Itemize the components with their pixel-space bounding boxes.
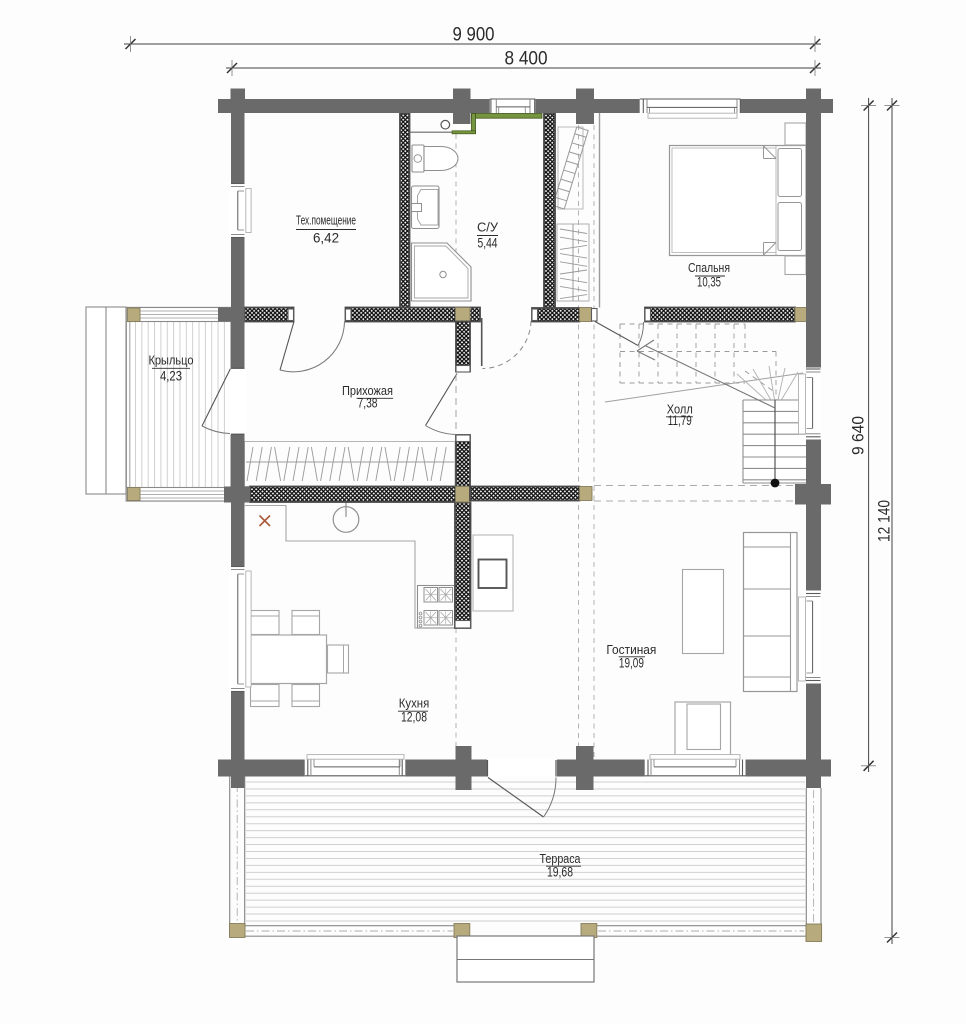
svg-text:8 400: 8 400 <box>505 49 548 70</box>
svg-text:4,23: 4,23 <box>160 369 182 384</box>
svg-text:5,44: 5,44 <box>478 236 498 251</box>
svg-text:6,42: 6,42 <box>313 231 339 246</box>
svg-text:11,79: 11,79 <box>668 413 692 428</box>
svg-text:19,09: 19,09 <box>619 656 644 671</box>
svg-text:9 900: 9 900 <box>453 25 495 46</box>
svg-text:Крыльцо: Крыльцо <box>149 353 194 368</box>
svg-text:7,38: 7,38 <box>358 396 378 411</box>
svg-text:10,35: 10,35 <box>697 275 721 290</box>
svg-text:Тех.помещение: Тех.помещение <box>296 213 356 228</box>
svg-text:12 140: 12 140 <box>875 500 894 542</box>
svg-text:12,08: 12,08 <box>401 710 427 725</box>
svg-text:9 640: 9 640 <box>849 416 868 455</box>
svg-text:Спальня: Спальня <box>688 260 730 275</box>
svg-text:19,68: 19,68 <box>547 865 573 880</box>
svg-text:Кухня: Кухня <box>399 696 430 711</box>
svg-text:С/У: С/У <box>477 220 499 235</box>
